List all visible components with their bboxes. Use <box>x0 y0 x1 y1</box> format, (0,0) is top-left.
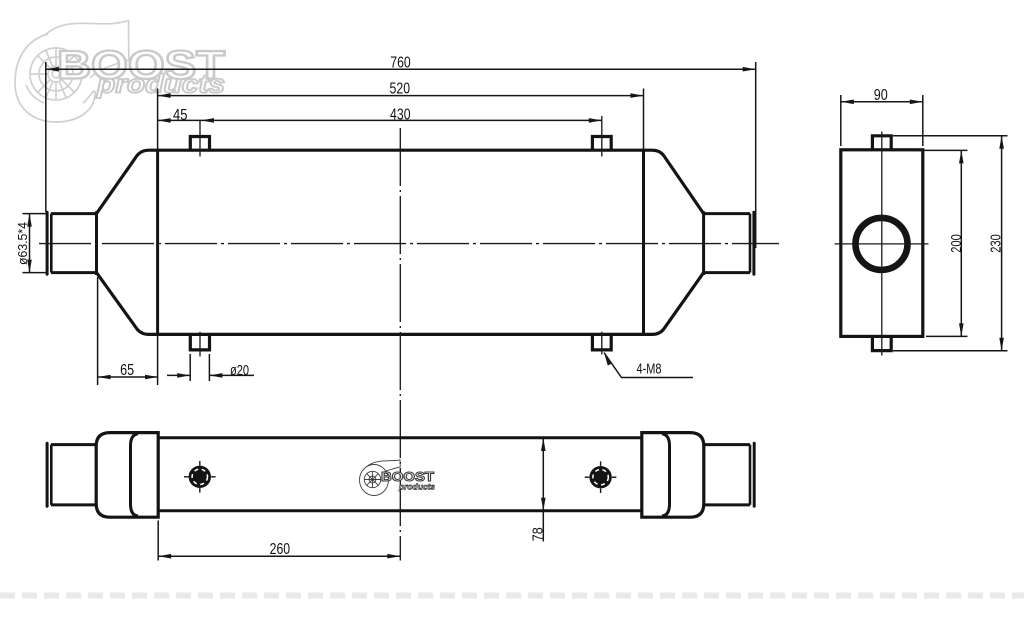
svg-text:760: 760 <box>390 54 411 71</box>
svg-text:430: 430 <box>390 107 411 124</box>
svg-text:45: 45 <box>173 107 188 124</box>
svg-text:260: 260 <box>270 541 291 558</box>
svg-text:4-M8: 4-M8 <box>637 361 662 377</box>
svg-text:ø63.5*4: ø63.5*4 <box>15 222 30 265</box>
svg-text:78: 78 <box>531 527 547 541</box>
svg-text:products: products <box>96 69 225 99</box>
svg-text:ø20: ø20 <box>230 362 249 379</box>
svg-text:230: 230 <box>988 234 1004 253</box>
svg-text:200: 200 <box>949 234 965 253</box>
svg-text:520: 520 <box>390 81 411 98</box>
svg-text:90: 90 <box>874 87 888 104</box>
svg-text:65: 65 <box>120 362 134 379</box>
svg-text:products: products <box>398 482 435 492</box>
